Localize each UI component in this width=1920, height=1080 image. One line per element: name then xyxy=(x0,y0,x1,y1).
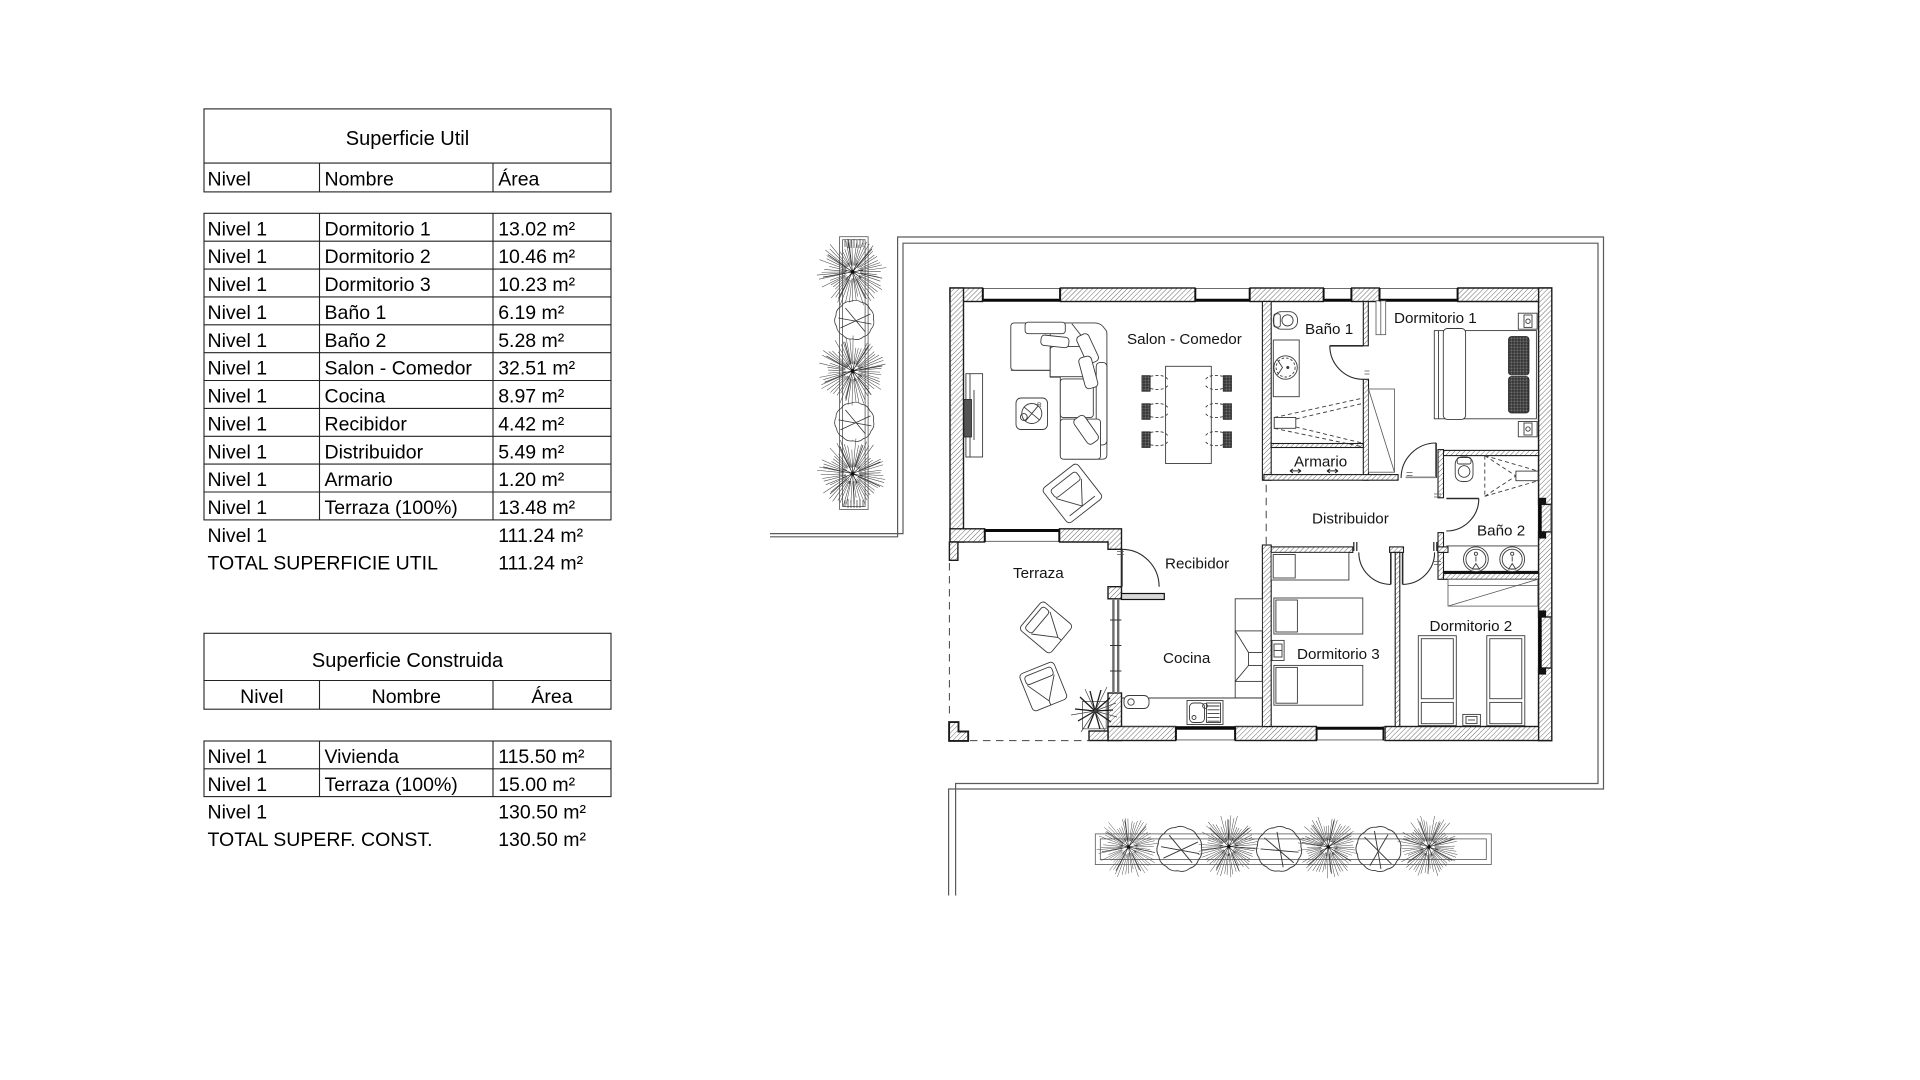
svg-text:Nivel 1: Nivel 1 xyxy=(208,525,268,547)
svg-text:8.97 m²: 8.97 m² xyxy=(498,386,565,408)
svg-text:Armario: Armario xyxy=(325,469,393,491)
svg-text:Baño 1: Baño 1 xyxy=(325,302,387,324)
svg-text:Terraza: Terraza xyxy=(1013,565,1064,582)
svg-text:R: R xyxy=(1037,402,1042,409)
svg-text:TOTAL SUPERF. CONST.: TOTAL SUPERF. CONST. xyxy=(208,829,433,851)
svg-text:Nivel 1: Nivel 1 xyxy=(208,746,268,768)
svg-text:Nombre: Nombre xyxy=(372,686,441,708)
svg-text:Superficie Construida: Superficie Construida xyxy=(312,650,504,672)
svg-text:Armario: Armario xyxy=(1294,454,1347,471)
svg-text:Nivel: Nivel xyxy=(240,686,283,708)
svg-text:32.51 m²: 32.51 m² xyxy=(498,358,575,380)
svg-text:111.24 m²: 111.24 m² xyxy=(498,525,583,547)
svg-text:Terraza (100%): Terraza (100%) xyxy=(325,774,458,796)
svg-text:130.50 m²: 130.50 m² xyxy=(498,801,586,823)
svg-text:Dormitorio 2: Dormitorio 2 xyxy=(325,246,431,268)
svg-text:Baño 1: Baño 1 xyxy=(1305,321,1353,338)
svg-text:Área: Área xyxy=(531,685,572,708)
svg-text:10.23 m²: 10.23 m² xyxy=(498,274,575,296)
svg-text:Recibidor: Recibidor xyxy=(1165,556,1229,573)
svg-text:Dormitorio 3: Dormitorio 3 xyxy=(325,274,431,296)
svg-text:Dormitorio 2: Dormitorio 2 xyxy=(1430,618,1513,635)
svg-text:Distribuidor: Distribuidor xyxy=(1312,511,1389,528)
svg-text:Nivel 1: Nivel 1 xyxy=(208,386,268,408)
svg-text:Distribuidor: Distribuidor xyxy=(325,441,424,463)
svg-text:Cocina: Cocina xyxy=(325,386,386,408)
svg-text:Dormitorio 1: Dormitorio 1 xyxy=(1394,310,1477,327)
svg-text:115.50 m²: 115.50 m² xyxy=(498,746,585,768)
svg-text:Terraza (100%): Terraza (100%) xyxy=(325,497,458,519)
svg-text:Nivel 1: Nivel 1 xyxy=(208,469,268,491)
svg-text:Nivel 1: Nivel 1 xyxy=(208,801,268,823)
svg-text:6.19 m²: 6.19 m² xyxy=(498,302,565,324)
svg-text:1.20 m²: 1.20 m² xyxy=(498,469,565,491)
svg-text:130.50 m²: 130.50 m² xyxy=(498,829,586,851)
svg-text:5.49 m²: 5.49 m² xyxy=(498,441,565,463)
svg-text:5.28 m²: 5.28 m² xyxy=(498,330,565,352)
svg-text:Baño 2: Baño 2 xyxy=(325,330,387,352)
svg-text:Nivel 1: Nivel 1 xyxy=(208,441,268,463)
svg-text:Salon - Comedor: Salon - Comedor xyxy=(325,358,473,380)
svg-text:Salon - Comedor: Salon - Comedor xyxy=(1127,331,1242,348)
svg-text:Nivel 1: Nivel 1 xyxy=(208,218,268,240)
svg-text:Dormitorio 3: Dormitorio 3 xyxy=(1297,646,1380,663)
svg-text:Superficie Util: Superficie Util xyxy=(346,128,469,150)
svg-text:Baño 2: Baño 2 xyxy=(1477,523,1525,540)
svg-text:Recibidor: Recibidor xyxy=(325,413,408,435)
svg-text:Vivienda: Vivienda xyxy=(325,746,400,768)
svg-text:Nivel 1: Nivel 1 xyxy=(208,497,268,519)
svg-text:Dormitorio 1: Dormitorio 1 xyxy=(325,218,431,240)
svg-text:Nivel 1: Nivel 1 xyxy=(208,302,268,324)
svg-text:Nivel 1: Nivel 1 xyxy=(208,246,268,268)
svg-text:Nivel 1: Nivel 1 xyxy=(208,274,268,296)
svg-text:4.42 m²: 4.42 m² xyxy=(498,413,565,435)
svg-text:13.48 m²: 13.48 m² xyxy=(498,497,575,519)
svg-text:Nivel 1: Nivel 1 xyxy=(208,774,268,796)
svg-text:111.24 m²: 111.24 m² xyxy=(498,552,583,574)
svg-text:TOTAL SUPERFICIE UTIL: TOTAL SUPERFICIE UTIL xyxy=(208,552,439,574)
svg-text:Nivel 1: Nivel 1 xyxy=(208,358,268,380)
svg-text:Cocina: Cocina xyxy=(1163,650,1211,667)
svg-text:Área: Área xyxy=(498,168,539,191)
svg-text:Nivel: Nivel xyxy=(208,169,251,191)
svg-text:Nivel 1: Nivel 1 xyxy=(208,330,268,352)
svg-text:Nombre: Nombre xyxy=(325,169,394,191)
svg-text:10.46 m²: 10.46 m² xyxy=(498,246,575,268)
svg-text:15.00 m²: 15.00 m² xyxy=(498,774,575,796)
svg-text:13.02 m²: 13.02 m² xyxy=(498,218,575,240)
svg-text:Nivel 1: Nivel 1 xyxy=(208,413,268,435)
